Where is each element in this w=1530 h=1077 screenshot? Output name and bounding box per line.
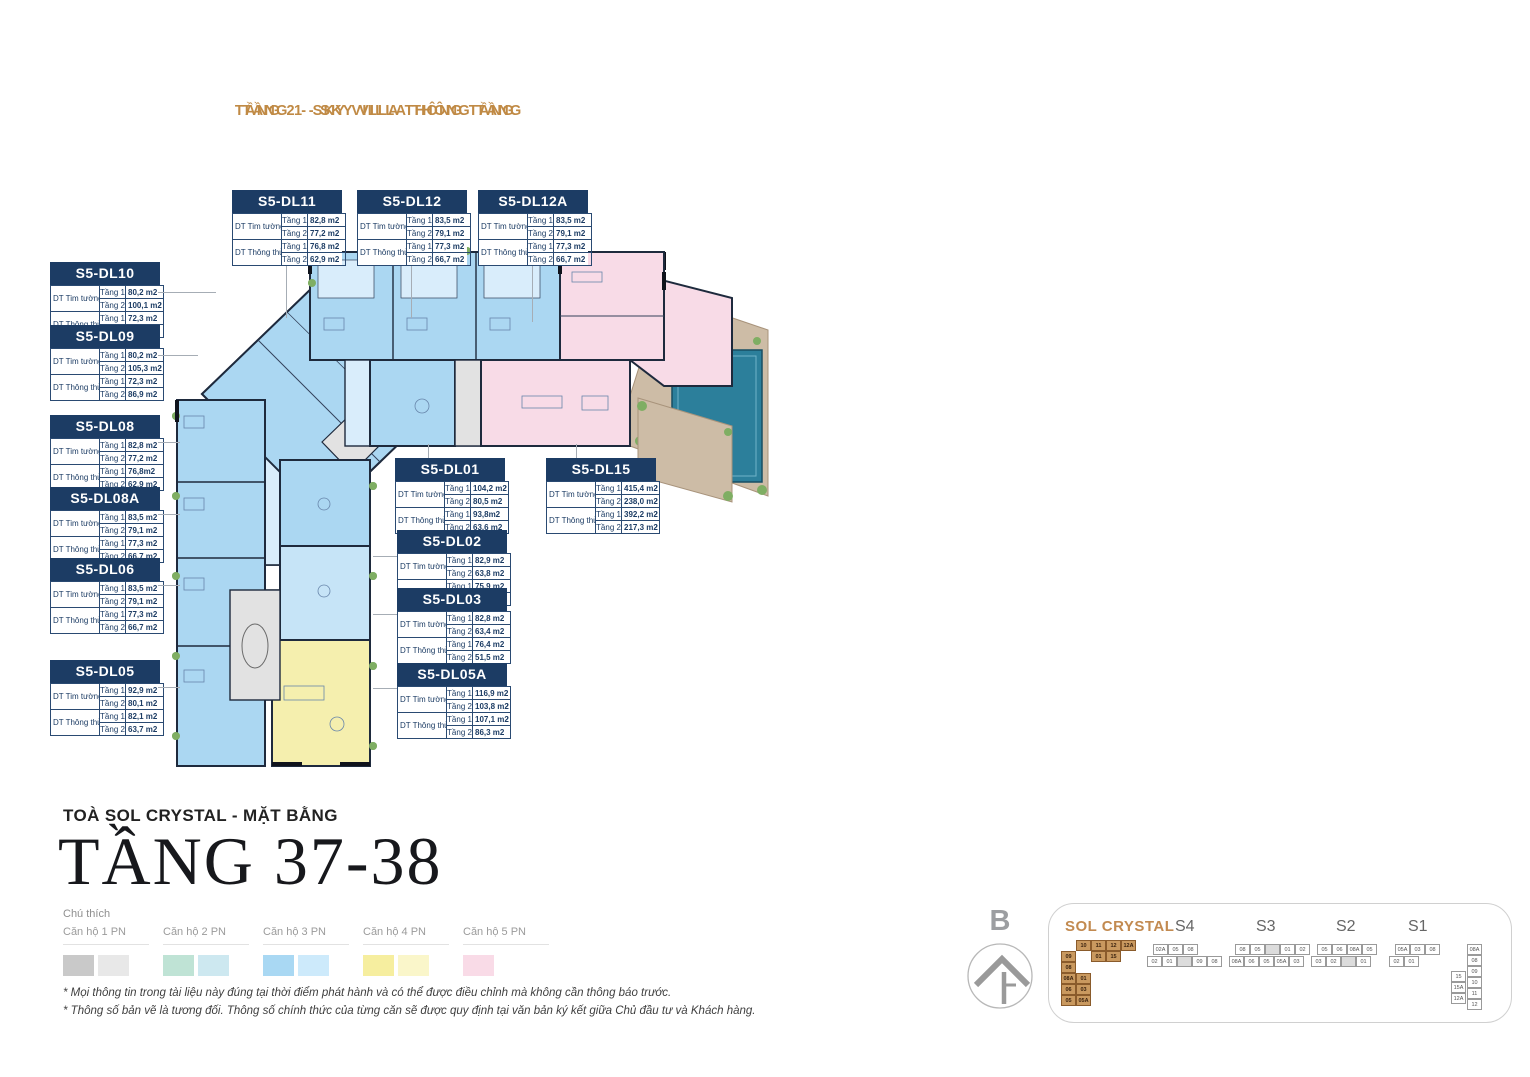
minimap-unit-cell: 06 — [1332, 944, 1347, 955]
minimap-unit-cell: 05 — [1168, 944, 1183, 955]
unit-area-table: S5-DL08A DT Tim tườngTầng 183,5 m2 Tầng … — [50, 487, 160, 563]
minimap-unit-cell — [1341, 956, 1356, 967]
swatch — [363, 955, 394, 976]
floorplan-section-tang2: TẦNG 2 - SKY VILLA THÔNG TẦNG — [0, 0, 750, 790]
minimap-unit-cell: 08 — [1235, 944, 1250, 955]
unit-id-label: S5-DL03 — [397, 588, 507, 611]
minimap-unit-cell: 12A — [1121, 940, 1136, 951]
unit-id-label: S5-DL01 — [395, 458, 505, 481]
minimap-unit-cell: 08 — [1183, 944, 1198, 955]
swatch — [98, 955, 129, 976]
minimap-unit-cell: 15 — [1106, 951, 1121, 962]
swatch — [463, 955, 494, 976]
minimap-unit-cell: 05A — [1395, 944, 1410, 955]
unit-area-table: S5-DL03 DT Tim tườngTầng 182,8 m2 Tầng 2… — [397, 588, 507, 664]
minimap-strip: 10111212A0901150808A0605010305A02A050802… — [1061, 940, 1503, 1016]
minimap-unit-cell: 05 — [1061, 995, 1076, 1006]
unit-area-table: S5-DL12A DT Tim tườngTầng 183,5 m2 Tầng … — [478, 190, 588, 266]
leader-line — [158, 292, 216, 293]
minimap-unit-cell: 05 — [1362, 944, 1377, 955]
unit-area-values: DT Tim tườngTầng 180,2 m2 Tầng 2105,3 m2… — [50, 348, 164, 401]
unit-id-label: S5-DL08 — [50, 415, 160, 438]
unit-area-values: DT Tim tườngTầng 183,5 m2 Tầng 279,1 m2 … — [478, 213, 592, 266]
swatch — [263, 955, 294, 976]
unit-area-values: DT Tim tườngTầng 183,5 m2 Tầng 279,1 m2 … — [357, 213, 471, 266]
minimap-unit-cell: 08A — [1467, 944, 1482, 955]
leader-line — [373, 556, 397, 557]
minimap-unit-cell: 02A — [1153, 944, 1168, 955]
legend-item-3pn: Căn hộ 3 PN — [263, 926, 363, 976]
leader-line — [373, 688, 397, 689]
minimap-unit-cell: 02 — [1389, 956, 1404, 967]
compass-north-label: B — [962, 905, 1038, 938]
unit-area-table: S5-DL11 DT Tim tườngTầng 182,8 m2 Tầng 2… — [232, 190, 342, 266]
minimap-unit-cell: 08A — [1229, 956, 1244, 967]
leader-line — [576, 444, 577, 458]
unit-id-label: S5-DL06 — [50, 558, 160, 581]
minimap-unit-cell: 06 — [1244, 956, 1259, 967]
unit-id-label: S5-DL15 — [546, 458, 656, 481]
unit-area-values: DT Tim tườngTầng 1104,2 m2 Tầng 280,5 m2… — [395, 481, 509, 534]
legend-item-5pn: Căn hộ 5 PN — [463, 926, 563, 976]
minimap-unit-cell: 01 — [1091, 951, 1106, 962]
legend: Căn hộ 1 PN Căn hộ 2 PN Căn hộ 3 PN Căn … — [63, 926, 563, 976]
minimap-unit-cell: 09 — [1061, 951, 1076, 962]
swatch — [163, 955, 194, 976]
minimap-unit-cell: 08 — [1207, 956, 1222, 967]
unit-area-table: S5-DL09 DT Tim tườngTầng 180,2 m2 Tầng 2… — [50, 325, 160, 401]
unit-area-table: S5-DL06 DT Tim tườngTầng 183,5 m2 Tầng 2… — [50, 558, 160, 634]
leader-line — [158, 585, 180, 586]
minimap-unit-cell: 12A — [1451, 993, 1466, 1004]
minimap-unit-cell: 10 — [1467, 977, 1482, 988]
minimap-unit-cell: 02 — [1147, 956, 1162, 967]
unit-id-label: S5-DL02 — [397, 530, 507, 553]
swatch — [398, 955, 429, 976]
disclaimer-notes: * Mọi thông tin trong tài liệu này đúng … — [63, 984, 755, 1020]
unit-id-label: S5-DL08A — [50, 487, 160, 510]
unit-area-values: DT Tim tườngTầng 1415,4 m2 Tầng 2238,0 m… — [546, 481, 660, 534]
minimap-tower-label-s1: S1 — [1408, 918, 1428, 936]
unit-id-label: S5-DL09 — [50, 325, 160, 348]
unit-area-values: DT Tim tườngTầng 183,5 m2 Tầng 279,1 m2 … — [50, 581, 164, 634]
leader-line — [158, 514, 180, 515]
minimap-unit-cell: 10 — [1076, 940, 1091, 951]
minimap-unit-cell: 05 — [1250, 944, 1265, 955]
unit-id-label: S5-DL10 — [50, 262, 160, 285]
unit-area-table: S5-DL05 DT Tim tườngTầng 192,9 m2 Tầng 2… — [50, 660, 160, 736]
minimap-tower-label-s3: S3 — [1256, 918, 1276, 936]
minimap-unit-cell: 05A — [1274, 956, 1289, 967]
unit-area-values: DT Tim tườngTầng 182,8 m2 Tầng 277,2 m2 … — [232, 213, 346, 266]
minimap-unit-cell: 12 — [1106, 940, 1121, 951]
leader-line — [532, 266, 533, 322]
swatch — [198, 955, 229, 976]
minimap-unit-cell: 12 — [1467, 999, 1482, 1010]
unit-area-values: DT Tim tườngTầng 182,8 m2 Tầng 263,4 m2 … — [397, 611, 511, 664]
unit-area-table: S5-DL15 DT Tim tườngTầng 1415,4 m2 Tầng … — [546, 458, 656, 534]
unit-area-values: DT Tim tườngTầng 183,5 m2 Tầng 279,1 m2 … — [50, 510, 164, 563]
minimap-tower-label-s4: S4 — [1175, 918, 1195, 936]
unit-area-table: S5-DL08 DT Tim tườngTầng 182,8 m2 Tầng 2… — [50, 415, 160, 491]
unit-area-table: S5-DL05A DT Tim tườngTầng 1116,9 m2 Tầng… — [397, 663, 507, 739]
brochure-page: TẦNG 1 - SKY VILLA THÔNG TẦNG — [0, 0, 1530, 1077]
page-title: TẦNG 37-38 — [58, 822, 443, 901]
minimap-unit-cell: 09 — [1192, 956, 1207, 967]
minimap-unit-cell: 08 — [1467, 955, 1482, 966]
unit-area-table: S5-DL12 DT Tim tườngTầng 183,5 m2 Tầng 2… — [357, 190, 467, 266]
compass: B — [962, 905, 1038, 1015]
note-line: * Mọi thông tin trong tài liệu này đúng … — [63, 984, 755, 1002]
minimap-unit-cell: 03 — [1076, 984, 1091, 995]
minimap-unit-cell: 01 — [1356, 956, 1371, 967]
compass-icon — [964, 938, 1036, 1010]
unit-area-values: DT Tim tườngTầng 1116,9 m2 Tầng 2103,8 m… — [397, 686, 511, 739]
minimap-unit-cell: 08 — [1061, 962, 1076, 973]
swatch — [63, 955, 94, 976]
unit-id-label: S5-DL05A — [397, 663, 507, 686]
plan-header-tang2: TẦNG 2 - SKY VILLA THÔNG TẦNG — [0, 103, 750, 119]
leader-line — [373, 614, 397, 615]
minimap-unit-cell — [1265, 944, 1280, 955]
minimap-unit-cell: 08A — [1061, 973, 1076, 984]
minimap-unit-cell: 08A — [1347, 944, 1362, 955]
minimap-unit-cell: 15 — [1451, 971, 1466, 982]
leader-line — [411, 266, 412, 318]
minimap-unit-cell: 05A — [1076, 995, 1091, 1006]
minimap-unit-cell: 03 — [1410, 944, 1425, 955]
minimap-unit-cell: 09 — [1467, 966, 1482, 977]
unit-id-label: S5-DL05 — [50, 660, 160, 683]
note-line: * Thông số bản vẽ là tương đối. Thông số… — [63, 1002, 755, 1020]
minimap-unit-cell: 03 — [1289, 956, 1304, 967]
minimap-unit-cell: 01 — [1076, 973, 1091, 984]
leader-line — [428, 444, 429, 458]
unit-id-label: S5-DL12 — [357, 190, 467, 213]
minimap-unit-cell: 06 — [1061, 984, 1076, 995]
minimap-unit-cell: 02 — [1295, 944, 1310, 955]
unit-area-values: DT Tim tườngTầng 192,9 m2 Tầng 280,1 m2 … — [50, 683, 164, 736]
minimap-unit-cell: 01 — [1162, 956, 1177, 967]
minimap-building-label: SOL CRYSTAL — [1065, 918, 1174, 935]
legend-item-4pn: Căn hộ 4 PN — [363, 926, 463, 976]
leader-line — [158, 442, 180, 443]
swatch — [298, 955, 329, 976]
minimap-tower-label-s2: S2 — [1336, 918, 1356, 936]
minimap-unit-cell: 11 — [1467, 988, 1482, 999]
legend-heading: Chú thích — [63, 908, 110, 920]
minimap-unit-cell: 11 — [1091, 940, 1106, 951]
minimap-unit-cell: 08 — [1425, 944, 1440, 955]
legend-item-2pn: Căn hộ 2 PN — [163, 926, 263, 976]
minimap-unit-cell: 01 — [1404, 956, 1419, 967]
minimap-unit-cell: 03 — [1311, 956, 1326, 967]
leader-line — [158, 355, 198, 356]
minimap-unit-cell: 02 — [1326, 956, 1341, 967]
legend-item-1pn: Căn hộ 1 PN — [63, 926, 163, 976]
minimap-unit-cell — [1177, 956, 1192, 967]
minimap-unit-cell: 05 — [1259, 956, 1274, 967]
minimap-unit-cell: 05 — [1317, 944, 1332, 955]
site-minimap: SOL CRYSTAL S4 S3 S2 S1 10111212A0901150… — [1048, 903, 1512, 1023]
unit-id-label: S5-DL12A — [478, 190, 588, 213]
minimap-unit-cell: 01 — [1280, 944, 1295, 955]
unit-id-label: S5-DL11 — [232, 190, 342, 213]
leader-line — [286, 266, 287, 318]
minimap-unit-cell: 15A — [1451, 982, 1466, 993]
unit-area-values: DT Tim tườngTầng 182,8 m2 Tầng 277,2 m2 … — [50, 438, 164, 491]
leader-line — [158, 687, 180, 688]
unit-area-table: S5-DL01 DT Tim tườngTầng 1104,2 m2 Tầng … — [395, 458, 505, 534]
